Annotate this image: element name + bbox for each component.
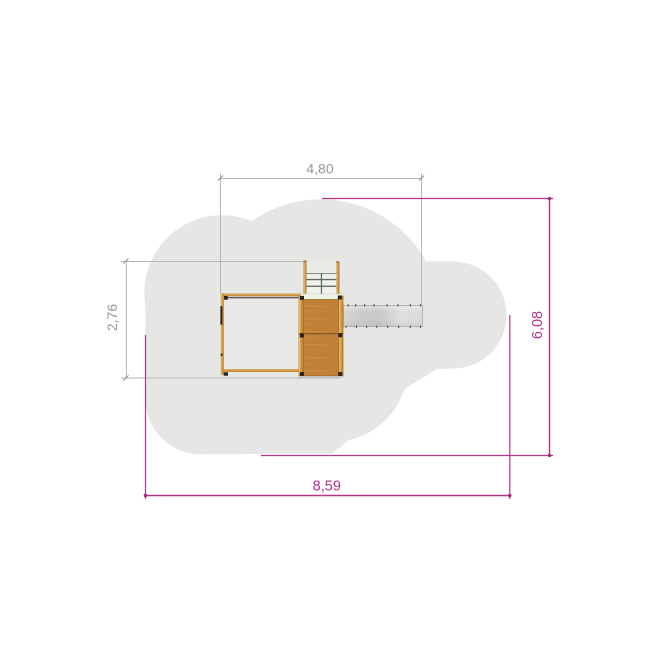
svg-text:8,59: 8,59 xyxy=(313,478,341,494)
svg-text:6,08: 6,08 xyxy=(530,311,546,339)
svg-text:2,76: 2,76 xyxy=(104,304,120,331)
svg-text:4,80: 4,80 xyxy=(306,161,333,177)
